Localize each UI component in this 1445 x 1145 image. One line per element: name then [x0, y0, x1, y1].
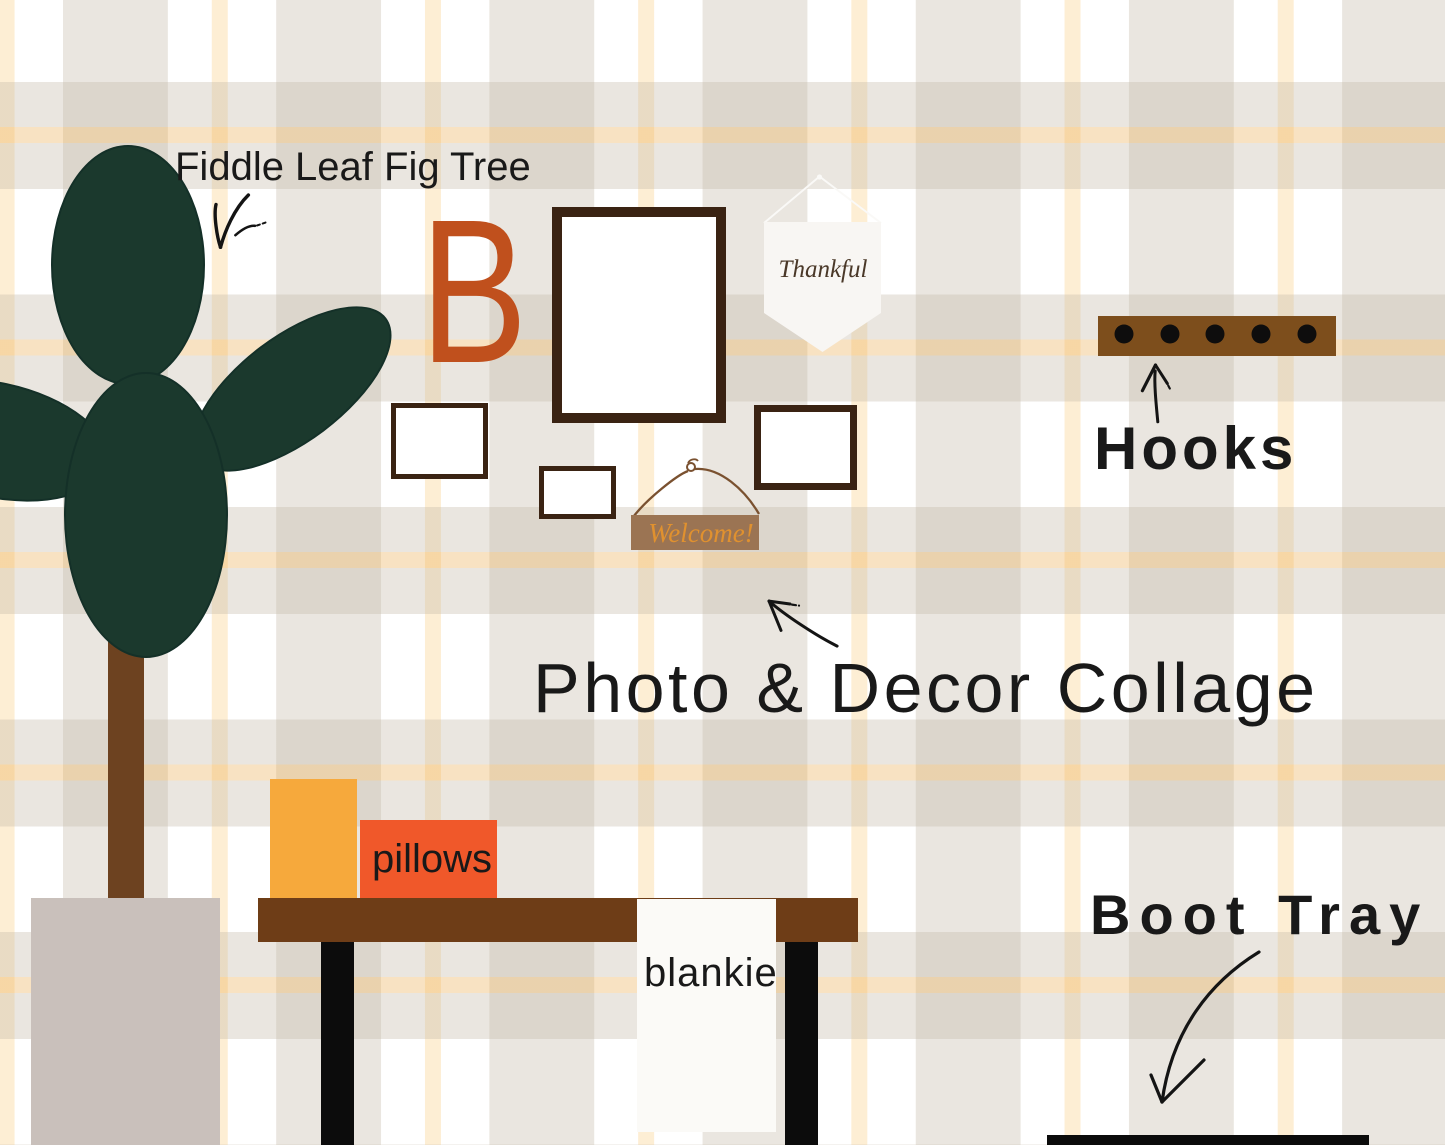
svg-text:Thankful: Thankful — [779, 256, 868, 283]
